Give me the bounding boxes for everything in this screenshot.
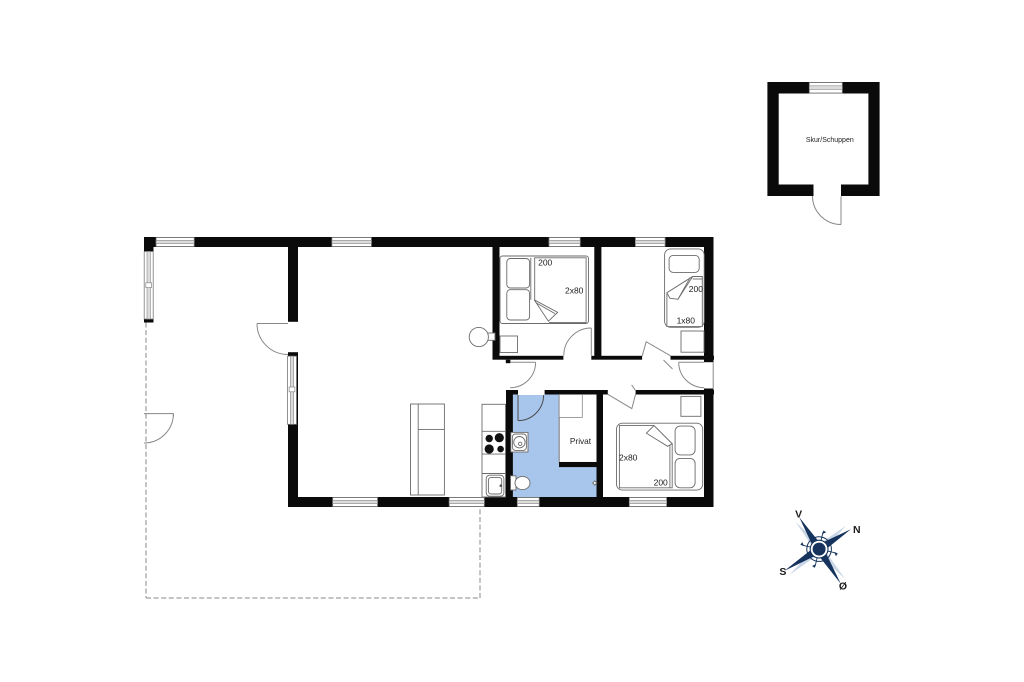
svg-text:S: S — [779, 566, 786, 578]
svg-text:2x80: 2x80 — [619, 453, 638, 463]
svg-text:V: V — [795, 509, 802, 521]
svg-text:N: N — [853, 524, 861, 536]
svg-text:1x80: 1x80 — [677, 316, 696, 326]
svg-text:Privat: Privat — [570, 436, 592, 446]
svg-text:Ø: Ø — [839, 581, 847, 593]
svg-text:200: 200 — [689, 284, 703, 294]
svg-text:200: 200 — [538, 258, 552, 268]
svg-text:Skur/Schuppen: Skur/Schuppen — [806, 137, 854, 144]
svg-text:200: 200 — [654, 478, 668, 488]
svg-text:2x80: 2x80 — [565, 286, 584, 296]
